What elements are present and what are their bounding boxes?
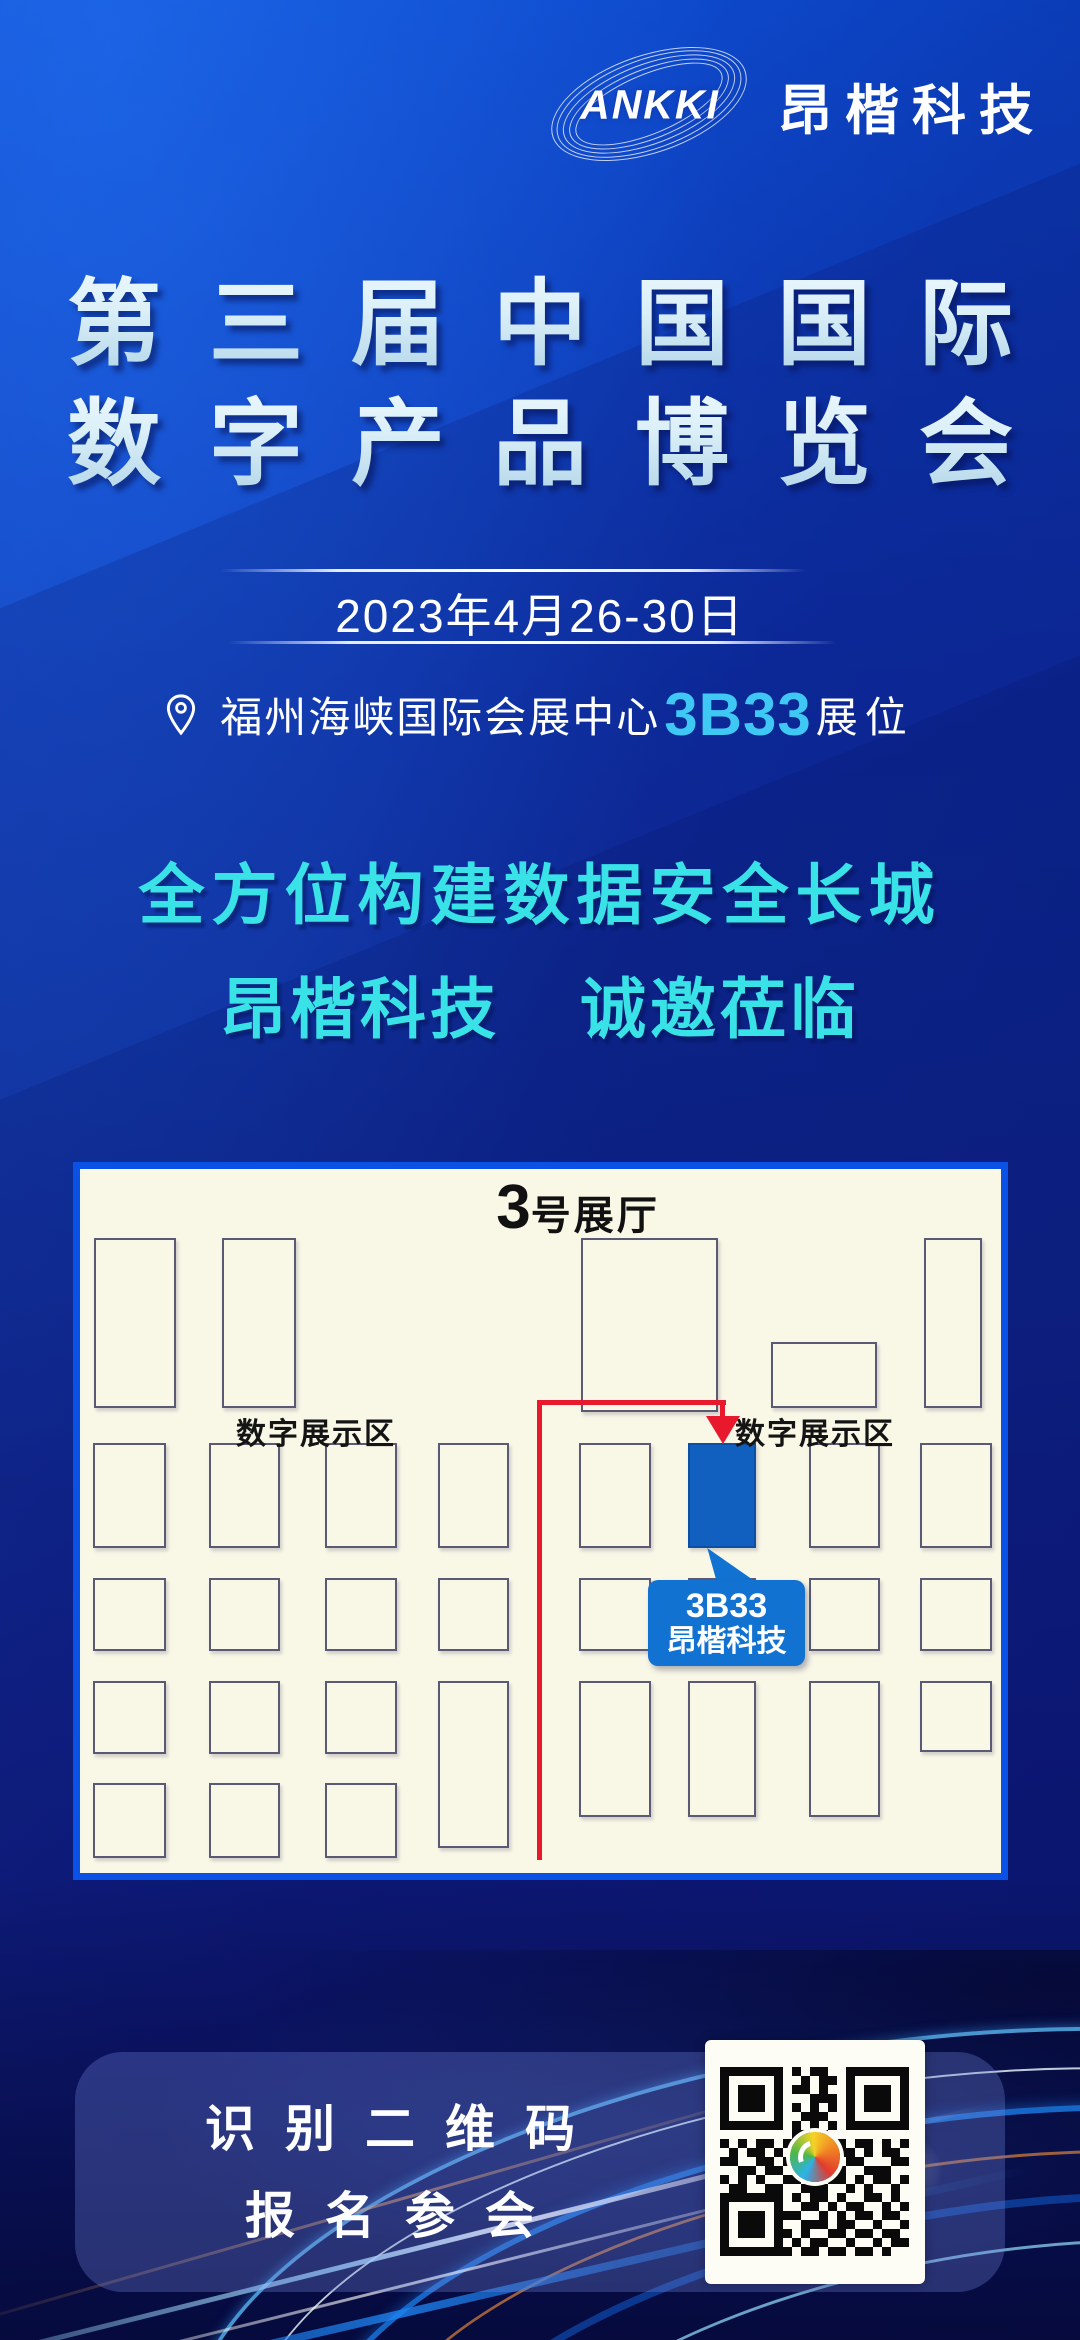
location-pin-icon — [166, 694, 196, 736]
signup-line1: 识别二维码 — [175, 2104, 605, 2154]
booth — [325, 1578, 397, 1651]
qr-center-logo-icon — [790, 2132, 840, 2182]
booth — [438, 1443, 509, 1548]
brand-latin-name: ANKKI — [580, 82, 720, 129]
exhibition-floor-map: 3 号展厅 数字展示区 数字展示区 3B33 昂楷科技 — [73, 1162, 1008, 1880]
signup-line2: 报名参会 — [215, 2191, 565, 2241]
booth — [209, 1578, 280, 1651]
callout-booth-number: 3B33 — [686, 1589, 767, 1623]
venue-booth-suffix: 展位 — [816, 684, 914, 745]
booth — [209, 1681, 280, 1754]
booth — [325, 1783, 397, 1858]
event-title-line2: 数字产品博览会 — [0, 368, 1080, 504]
booth — [920, 1443, 992, 1548]
ankki-ellipse-logo-icon: ANKKI — [550, 53, 750, 158]
booth — [438, 1578, 509, 1651]
slogan-line2-right: 诚邀莅临 — [580, 956, 860, 1052]
booth — [579, 1578, 651, 1651]
callout-company-name: 昂楷科技 — [667, 1627, 787, 1657]
route-line-horizontal — [537, 1400, 726, 1405]
booth — [93, 1783, 166, 1858]
booth-callout: 3B33 昂楷科技 — [648, 1580, 805, 1666]
venue-row: 福州海峡国际会展中心 3B33 展位 — [0, 680, 1080, 749]
date-divider-top — [220, 569, 806, 572]
slogan-line1: 全方位构建数据安全长城 — [0, 842, 1080, 938]
booth — [325, 1681, 397, 1754]
hall-title: 3 号展厅 — [496, 1177, 659, 1239]
booth — [209, 1443, 280, 1548]
booth — [438, 1681, 509, 1848]
booth — [94, 1238, 176, 1408]
route-line-vertical — [537, 1400, 542, 1860]
venue-booth-number: 3B33 — [664, 680, 811, 749]
brand-chinese-name: 昂楷科技 — [778, 66, 1046, 145]
hall-label: 号展厅 — [531, 1196, 660, 1239]
venue-name: 福州海峡国际会展中心 — [220, 684, 660, 745]
route-arrowhead-icon — [706, 1416, 740, 1444]
booth — [93, 1681, 166, 1754]
signup-text-block: 识别二维码 报名参会 — [75, 2052, 705, 2292]
booth — [325, 1443, 397, 1548]
booth — [809, 1681, 880, 1817]
date-divider-bottom — [228, 641, 836, 644]
qr-code — [705, 2040, 925, 2284]
booth — [809, 1443, 880, 1548]
booth-callout-pointer — [703, 1548, 756, 1582]
booth — [581, 1238, 718, 1412]
venue-text: 福州海峡国际会展中心 3B33 展位 — [220, 680, 913, 749]
booth — [809, 1578, 880, 1651]
booth — [209, 1783, 280, 1858]
brand-header: ANKKI 昂楷科技 — [550, 45, 1050, 165]
booth — [579, 1681, 651, 1817]
event-date: 2023年4月26-30日 — [0, 580, 1080, 646]
booth-highlight-3B33 — [688, 1443, 756, 1548]
booth — [688, 1681, 756, 1817]
poster: ANKKI 昂楷科技 第三届中国国际 数字产品博览会 2023年4月26-30日… — [0, 0, 1080, 2340]
booth — [771, 1342, 877, 1408]
booth — [93, 1443, 166, 1548]
booth — [920, 1578, 992, 1651]
slogan-line2: 昂楷科技 诚邀莅临 — [0, 956, 1080, 1052]
booth — [93, 1578, 166, 1651]
booth — [920, 1681, 992, 1752]
event-title-line1: 第三届中国国际 — [0, 248, 1080, 384]
booth — [924, 1238, 982, 1408]
zone-label-left: 数字展示区 — [196, 1409, 436, 1453]
booth — [579, 1443, 651, 1548]
booth — [222, 1238, 296, 1408]
hall-number: 3 — [496, 1177, 530, 1239]
slogan-line2-left: 昂楷科技 — [220, 956, 500, 1052]
